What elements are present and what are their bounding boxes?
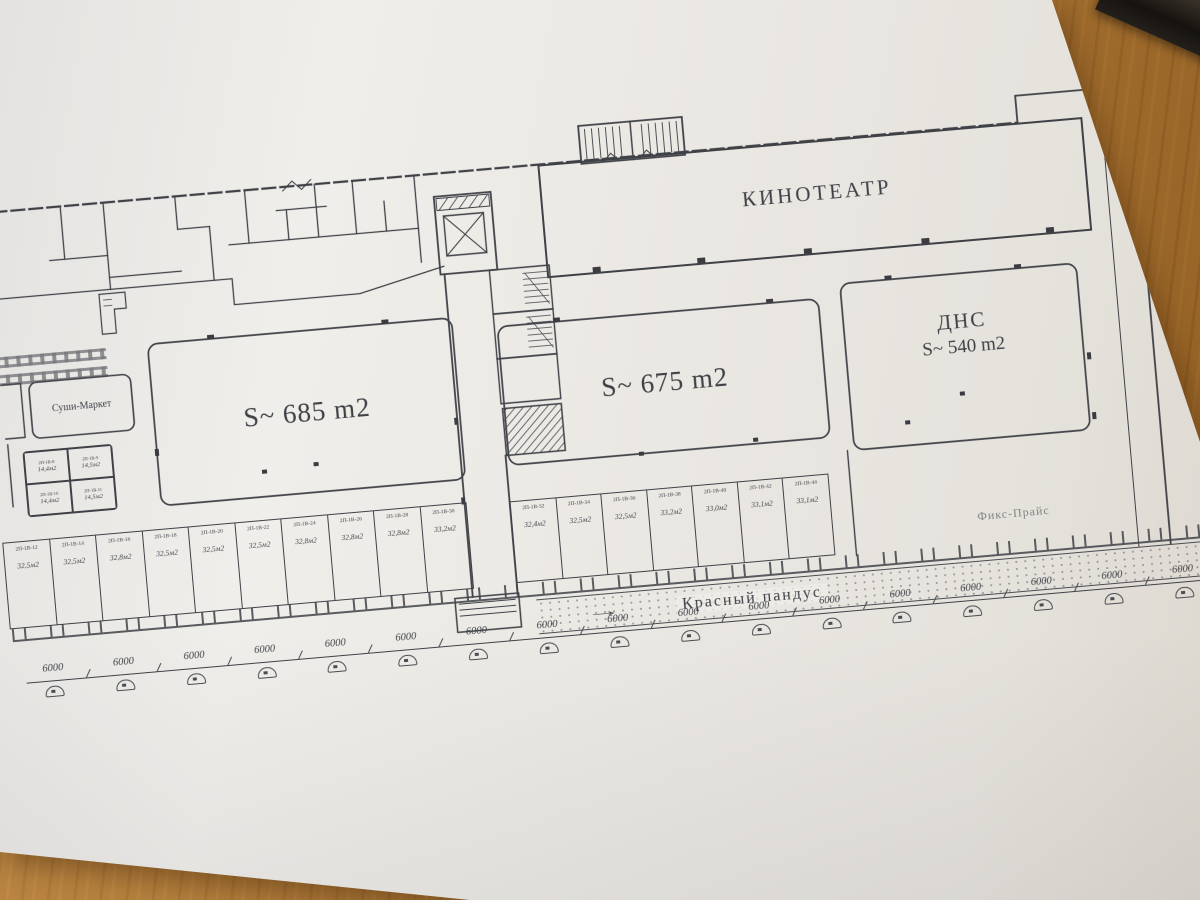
dimension-segment: 6000 [441,623,515,663]
paper-shadow-wrap: КИНОТЕАТР S~ 685 m2 S~ 675 m2 ДНС S~ 540… [0,0,1200,900]
dimension-value: 6000 [395,631,417,649]
east-area-walls [847,451,856,556]
dimension-value: 6000 [1030,575,1052,593]
floor-plan-sheet: КИНОТЕАТР S~ 685 m2 S~ 675 m2 ДНС S~ 540… [0,0,1200,900]
dimension-segment: 6000 [17,660,91,700]
plan-linework [0,55,1200,880]
grid-axis-bubble [398,654,418,667]
shop-unit-code: 2П-1В-12 [15,545,38,553]
small-room-area: 14,5м2 [84,493,103,503]
dimension-value: 6000 [254,643,276,661]
dimension-segment: 6000 [88,654,162,694]
dimension-segment: 6000 [158,647,232,687]
grid-axis-bubble [539,642,559,655]
dimension-segment: 6000 [511,617,585,657]
grid-axis-bubble [751,623,771,636]
shop-unit-code: 2П-1В-30 [432,508,455,516]
dimension-segment: 6000 [582,610,656,650]
desk-scene: КИНОТЕАТР S~ 685 m2 S~ 675 m2 ДНС S~ 540… [0,0,1200,900]
grid-axis-bubble [1175,586,1195,599]
dimension-value: 6000 [112,656,134,674]
shop-unit-code: 2П-1В-22 [247,524,270,532]
dns-name-label: ДНС [936,307,987,336]
shop-unit-area: 32,4м2 [524,518,546,529]
grid-axis-bubble [1033,598,1053,611]
dimension-value: 6000 [324,637,346,655]
shop-unit: 2П-1В-28 32,8м2 [374,507,428,596]
dimension-value: 6000 [42,662,64,680]
shop-unit-code: 2П-1В-44 [795,480,818,488]
small-room: 2П-1В-9 14,5м2 [67,445,114,481]
dimension-segment: 6000 [723,598,797,638]
shop-unit-area: 32,8м2 [295,535,317,546]
grid-axis-bubble [257,666,277,679]
small-rooms-block: 2П-1В-8 14,4м2 2П-1В-9 14,5м2 2П-1В-10 1… [22,444,117,518]
small-room: 2П-1В-11 14,5м2 [70,477,117,513]
shop-unit: 2П-1В-40 33,0м2 [692,482,744,566]
shop-unit-code: 2П-1В-32 [522,503,545,511]
hatched-room [502,404,565,456]
shop-unit-area: 32,8м2 [341,531,363,542]
grid-axis-bubble [680,629,700,642]
dimension-value: 6000 [536,619,558,637]
dimension-segment: 6000 [794,592,868,632]
shop-unit: 2П-1В-44 33,1м2 [783,475,834,559]
shop-unit-area: 33,0м2 [705,502,727,513]
small-room: 2П-1В-10 14,4м2 [26,481,73,517]
small-room-area: 14,5м2 [81,461,100,471]
retail-boxes [26,263,1091,521]
grid-axis-bubble [892,611,912,624]
shop-unit: 2П-1В-12 32,5м2 [3,540,57,629]
floor-plan: КИНОТЕАТР S~ 685 m2 S~ 675 m2 ДНС S~ 540… [0,98,1200,900]
shop-unit-area: 33,1м2 [751,498,773,509]
shop-unit-code: 2П-1В-28 [386,512,409,520]
shop-unit-code: 2П-1В-36 [613,495,636,503]
shop-unit-code: 2П-1В-42 [749,484,772,492]
dimension-segment: 6000 [935,579,1009,619]
dimension-value: 6000 [466,625,488,643]
dimension-value: 6000 [748,600,770,618]
elevator-icon [434,192,498,275]
shop-unit: 2П-1В-30 33,2м2 [420,503,473,592]
small-room-area: 14,4м2 [37,465,56,475]
dimension-value: 6000 [889,588,911,606]
shop-unit: 2П-1В-36 32,5м2 [601,490,653,574]
grid-axis-bubble [327,660,347,673]
shop-unit-area: 33,2м2 [660,506,682,517]
shop-unit-area: 32,5м2 [202,543,224,554]
shop-unit-area: 32,8м2 [109,552,131,563]
dimension-segment: 6000 [1147,561,1200,601]
dimension-value: 6000 [819,594,841,612]
dimension-segment: 6000 [1076,567,1150,607]
shop-unit-area: 32,5м2 [156,548,178,559]
shop-unit: 2П-1В-26 32,8м2 [328,511,382,600]
dimension-value: 6000 [1101,569,1123,587]
shop-unit-code: 2П-1В-24 [293,520,316,528]
grid-axis-bubble [45,685,65,698]
dimension-segment: 6000 [299,635,373,675]
shop-unit-area: 32,5м2 [63,556,85,567]
grid-axis-bubble [186,673,206,686]
dimension-segment: 6000 [229,641,303,681]
shop-unit: 2П-1В-20 32,5м2 [189,523,243,612]
grid-axis-bubble [469,648,489,661]
shop-unit-area: 33,1м2 [796,495,818,506]
dimension-value: 6000 [1172,563,1194,581]
small-room: 2П-1В-8 14,4м2 [23,449,70,485]
shop-unit-code: 2П-1В-16 [108,537,131,545]
shop-unit-code: 2П-1В-38 [658,491,681,499]
shop-unit-code: 2П-1В-18 [154,533,177,541]
shop-unit: 2П-1В-18 32,5м2 [142,527,196,616]
shop-unit: 2П-1В-42 33,1м2 [738,478,790,562]
shop-unit-code: 2П-1В-20 [201,528,224,536]
shop-unit-area: 32,5м2 [569,514,591,525]
grid-axis-bubble [610,636,630,649]
shop-unit: 2П-1В-38 33,2м2 [647,486,699,570]
shop-unit: 2П-1В-34 32,5м2 [556,494,608,578]
dimension-value: 6000 [607,613,629,631]
shop-unit: 2П-1В-14 32,5м2 [50,536,104,625]
shop-unit: 2П-1В-22 32,5м2 [235,519,289,608]
shop-unit: 2П-1В-32 32,4м2 [511,498,563,582]
shop-unit-area: 32,5м2 [248,539,270,550]
grid-axis-bubble [963,605,983,618]
dimension-value: 6000 [960,582,982,600]
shop-unit: 2П-1В-24 32,8м2 [281,515,335,604]
shop-unit-code: 2П-1В-26 [339,516,362,524]
grid-axis-bubble [115,679,135,692]
shop-unit-area: 32,5м2 [615,510,637,521]
dimension-segment: 6000 [370,629,444,669]
service-rooms [489,265,560,404]
dimension-value: 6000 [677,606,699,624]
shop-unit-area: 33,2м2 [434,523,456,534]
shop-unit-code: 2П-1В-34 [567,499,590,507]
dimension-segment: 6000 [1006,573,1080,613]
small-room-area: 14,4м2 [40,496,59,506]
shop-unit: 2П-1В-16 32,8м2 [96,532,150,621]
grid-axis-bubble [822,617,842,630]
shop-unit-area: 32,8м2 [387,527,409,538]
shop-unit-code: 2П-1В-14 [62,541,85,549]
dimension-value: 6000 [183,650,205,668]
shop-unit-code: 2П-1В-40 [704,487,727,495]
grid-axis-bubble [1104,592,1124,605]
dimension-segment: 6000 [652,604,726,644]
shop-unit-area: 32,5м2 [17,560,39,571]
dimension-segment: 6000 [864,586,938,626]
